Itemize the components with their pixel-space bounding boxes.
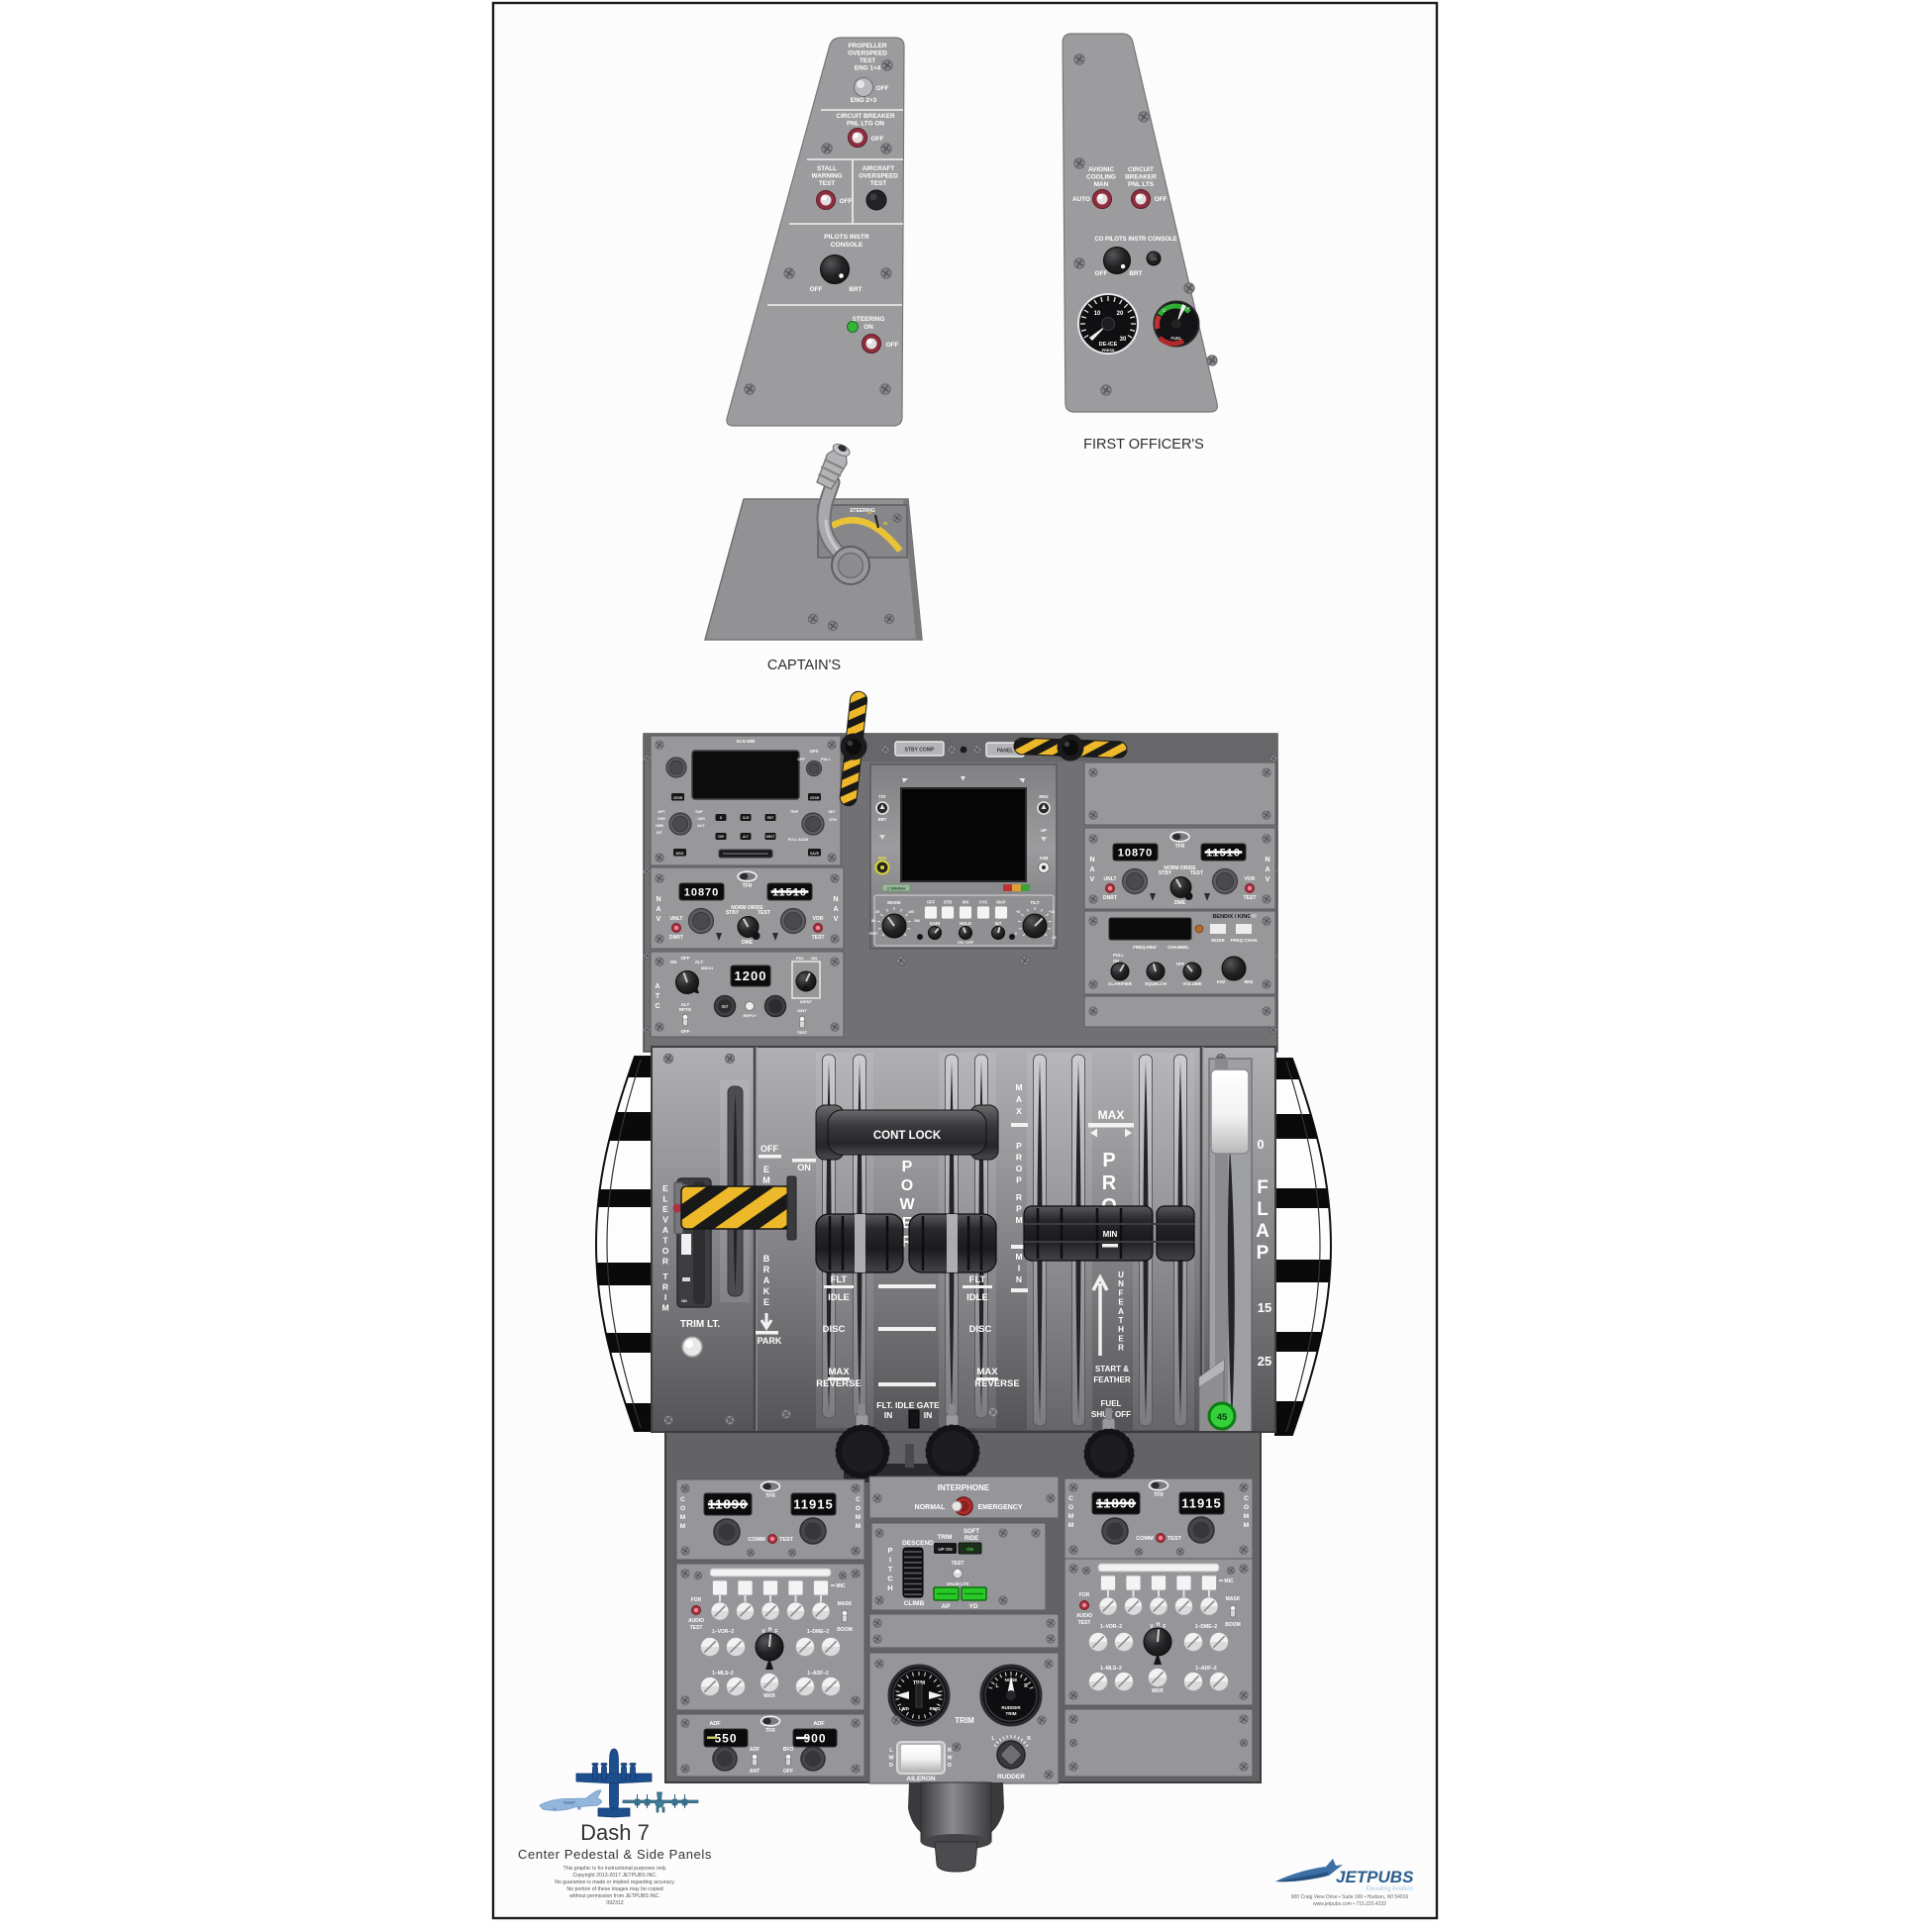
svg-text:PROPELLER: PROPELLER <box>848 43 886 50</box>
svg-text:ON: ON <box>811 956 817 961</box>
svg-text:1–DME–2: 1–DME–2 <box>1195 1624 1217 1630</box>
svg-text:D: D <box>889 1763 893 1769</box>
svg-text:JETPUBS: JETPUBS <box>1336 1868 1414 1886</box>
svg-text:H: H <box>1157 1622 1161 1628</box>
svg-text:DME: DME <box>742 940 754 946</box>
svg-text:11915: 11915 <box>1181 1496 1221 1511</box>
svg-text:CONT LOCK: CONT LOCK <box>873 1130 942 1142</box>
svg-text:MHZ: MHZ <box>1244 979 1254 984</box>
svg-text:A: A <box>662 1225 668 1235</box>
svg-text:M: M <box>680 1523 685 1530</box>
svg-text:www.jetpubs.com • 715.220.4232: www.jetpubs.com • 715.220.4232 <box>1313 1901 1386 1907</box>
svg-text:OFF: OFF <box>681 1029 690 1034</box>
svg-text:COOLING: COOLING <box>1086 174 1116 181</box>
svg-text:OFF: OFF <box>1095 270 1108 277</box>
svg-text:MSG: MSG <box>676 852 684 856</box>
svg-text:50: 50 <box>871 919 875 923</box>
svg-text:P: P <box>1016 1175 1022 1185</box>
svg-text:O: O <box>901 1177 913 1194</box>
svg-text:I: I <box>664 1292 666 1302</box>
svg-text:O: O <box>662 1246 669 1256</box>
svg-text:10: 10 <box>1094 311 1101 317</box>
svg-text:C: C <box>1068 1495 1073 1502</box>
svg-text:ADF: ADF <box>750 1747 760 1753</box>
svg-text:15: 15 <box>1258 1300 1271 1315</box>
svg-text:M: M <box>762 1175 770 1185</box>
svg-text:FREQ CHAN: FREQ CHAN <box>1231 938 1258 943</box>
svg-text:A: A <box>833 906 838 913</box>
svg-text:1–ADF–2: 1–ADF–2 <box>1195 1666 1217 1672</box>
svg-text:TFR: TFR <box>765 1728 775 1734</box>
svg-text:P: P <box>887 1546 892 1555</box>
svg-text:STBY: STBY <box>726 910 740 916</box>
svg-text:F: F <box>1119 1288 1124 1297</box>
svg-text:Center Pedestal & Side Panels: Center Pedestal & Side Panels <box>518 1847 712 1862</box>
svg-text:A: A <box>1016 1094 1022 1104</box>
svg-text:M: M <box>1068 1513 1073 1520</box>
svg-text:Dash 7: Dash 7 <box>580 1820 650 1845</box>
svg-text:SET: SET <box>829 810 837 814</box>
svg-text:C: C <box>887 1575 893 1583</box>
svg-text:MODE: MODE <box>1211 938 1225 943</box>
svg-text:MIC: MIC <box>1224 1578 1234 1584</box>
svg-text:W: W <box>899 1196 915 1213</box>
svg-text:P: P <box>1102 1150 1115 1171</box>
svg-text:PULL: PULL <box>821 758 832 762</box>
svg-text:20: 20 <box>1117 311 1124 317</box>
svg-text:MAX: MAX <box>1098 1108 1125 1122</box>
svg-text:STB: STB <box>944 900 952 905</box>
svg-text:E: E <box>662 1183 668 1193</box>
svg-text:PNL LTG ON: PNL LTG ON <box>847 121 884 128</box>
svg-text:C: C <box>1244 1495 1249 1502</box>
svg-text:MKR: MKR <box>763 1693 775 1699</box>
svg-text:BRT: BRT <box>849 286 862 293</box>
svg-text:H: H <box>1118 1325 1124 1334</box>
svg-text:E: E <box>763 1165 769 1174</box>
svg-text:MASK: MASK <box>1226 1596 1241 1602</box>
svg-text:R: R <box>1118 1344 1124 1353</box>
svg-text:RUDDER: RUDDER <box>997 1774 1025 1780</box>
svg-text:RUDDER: RUDDER <box>1001 1705 1021 1710</box>
svg-text:DE-ICE: DE-ICE <box>1099 342 1118 348</box>
svg-text:E: E <box>763 1297 769 1307</box>
svg-text:R: R <box>1102 1172 1117 1194</box>
svg-text:O: O <box>1244 1504 1249 1511</box>
svg-text:This graphic is for instructio: This graphic is for instructional purpos… <box>563 1866 667 1872</box>
svg-text:KLN 90B: KLN 90B <box>737 739 757 744</box>
svg-text:VOR: VOR <box>658 817 665 821</box>
svg-text:M: M <box>1015 1215 1022 1225</box>
svg-text:M: M <box>1244 1522 1249 1529</box>
svg-text:L: L <box>991 1736 994 1742</box>
svg-text:OFF: OFF <box>871 136 884 143</box>
svg-text:APT: APT <box>658 810 665 814</box>
svg-text:N: N <box>833 896 838 903</box>
svg-text:IDNT: IDNT <box>797 1008 807 1013</box>
svg-text:MIC: MIC <box>836 1583 846 1589</box>
svg-text:V: V <box>657 916 661 923</box>
svg-text:MAN: MAN <box>1094 181 1109 188</box>
svg-text:45: 45 <box>1217 1412 1228 1423</box>
svg-text:IDLE: IDLE <box>966 1292 988 1303</box>
svg-text:P: P <box>1016 1204 1022 1214</box>
svg-text:SQUELCH: SQUELCH <box>1145 981 1166 986</box>
svg-text:R: R <box>948 1748 952 1754</box>
svg-text:ON: ON <box>966 1547 973 1552</box>
svg-text:25: 25 <box>1258 1354 1271 1369</box>
svg-text:V: V <box>1090 876 1095 883</box>
svg-text:REVERSE: REVERSE <box>816 1378 861 1389</box>
svg-text:DME: DME <box>1174 900 1186 906</box>
svg-text:TEST: TEST <box>1078 1620 1091 1626</box>
svg-text:INT: INT <box>995 921 1002 926</box>
svg-text:ENG 1+4: ENG 1+4 <box>855 65 881 72</box>
svg-text:NRST: NRST <box>766 835 775 839</box>
svg-text:A: A <box>1256 1221 1269 1242</box>
svg-text:TEST: TEST <box>797 1030 808 1035</box>
svg-text:ON: ON <box>797 1163 811 1172</box>
svg-text:TEST: TEST <box>869 932 879 936</box>
svg-text:0: 0 <box>1015 932 1017 936</box>
svg-text:OFF: OFF <box>761 1144 778 1154</box>
svg-text:VOLUME: VOLUME <box>1182 981 1201 986</box>
svg-text:ON: ON <box>670 960 677 965</box>
svg-text:N: N <box>1089 857 1094 864</box>
svg-text:M: M <box>1015 1252 1022 1262</box>
svg-text:1–DME–2: 1–DME–2 <box>807 1629 829 1635</box>
svg-text:NAV: NAV <box>878 856 887 861</box>
svg-text:M: M <box>856 1514 861 1521</box>
svg-text:ON: ON <box>863 324 873 331</box>
svg-text:OFF: OFF <box>927 900 936 905</box>
svg-text:STALL: STALL <box>817 165 837 172</box>
svg-text:SAVE: SAVE <box>810 852 820 856</box>
svg-text:O: O <box>680 1505 685 1512</box>
svg-text:No portion of these images may: No portion of these images may be copied <box>566 1886 662 1892</box>
svg-text:BREAKER: BREAKER <box>1125 174 1157 181</box>
svg-text:PARK: PARK <box>758 1336 782 1346</box>
svg-text:N: N <box>1265 857 1269 864</box>
svg-text:X: X <box>1016 1106 1022 1116</box>
svg-text:REPLY: REPLY <box>744 1013 757 1018</box>
svg-text:TILT: TILT <box>1030 900 1039 905</box>
svg-text:TRIM: TRIM <box>955 1716 974 1725</box>
svg-text:F: F <box>1187 306 1190 311</box>
svg-text:TRIP: TRIP <box>790 810 799 814</box>
svg-text:OFF: OFF <box>1155 196 1167 203</box>
svg-text:V: V <box>834 916 839 923</box>
svg-text:LWD: LWD <box>899 1706 910 1711</box>
svg-text:MAX: MAX <box>828 1367 850 1377</box>
svg-text:BENDIX / KING: BENDIX / KING <box>1212 914 1251 920</box>
svg-text:OVERSPEED: OVERSPEED <box>859 173 898 180</box>
svg-text:30: 30 <box>1120 337 1127 343</box>
svg-text:-15: -15 <box>1051 936 1056 940</box>
svg-text:AP: AP <box>941 1603 951 1610</box>
svg-text:A: A <box>1089 866 1094 873</box>
svg-text:092312: 092312 <box>606 1900 623 1906</box>
svg-text:OFF: OFF <box>886 342 899 349</box>
svg-text:IN: IN <box>884 1410 893 1420</box>
svg-text:ASB: ASB <box>1040 856 1049 861</box>
svg-text:A: A <box>655 983 659 990</box>
svg-text:ALT: ALT <box>743 835 749 839</box>
svg-text:W: W <box>888 1756 894 1762</box>
svg-text:START &: START & <box>1095 1365 1129 1373</box>
svg-text:BRT: BRT <box>1129 270 1142 277</box>
svg-text:100: 100 <box>908 910 914 914</box>
svg-text:A: A <box>656 906 660 913</box>
svg-text:R: R <box>662 1282 668 1292</box>
svg-text:CRSR: CRSR <box>673 796 683 800</box>
svg-text:MAX: MAX <box>976 1367 998 1377</box>
svg-text:TEST: TEST <box>1190 870 1203 876</box>
svg-text:PRESS: PRESS <box>1102 349 1115 353</box>
svg-text:C SPKRVH: C SPKRVH <box>887 887 905 891</box>
svg-text:T: T <box>656 993 660 1000</box>
svg-text:A: A <box>1118 1307 1124 1316</box>
svg-text:TEST: TEST <box>758 910 770 916</box>
svg-text:TFR: TFR <box>765 1493 775 1499</box>
svg-text:F: F <box>1257 1177 1268 1198</box>
svg-text:U: U <box>1118 1271 1124 1279</box>
svg-text:A: A <box>763 1275 770 1285</box>
svg-text:MASK: MASK <box>838 1601 853 1607</box>
svg-text:CRSR: CRSR <box>810 796 820 800</box>
svg-text:OVERSPEED: OVERSPEED <box>848 51 887 57</box>
svg-text:PULL SCAN: PULL SCAN <box>788 838 809 842</box>
svg-text:FEATHER: FEATHER <box>1093 1375 1130 1384</box>
svg-text:+5: +5 <box>1016 910 1020 914</box>
svg-text:L: L <box>662 1194 667 1204</box>
svg-text:YD: YD <box>968 1603 977 1610</box>
svg-text:VOR: VOR <box>1245 876 1256 882</box>
svg-text:R: R <box>1027 1736 1031 1742</box>
svg-text:FUEL: FUEL <box>1101 1399 1122 1408</box>
svg-text:35: 35 <box>867 510 872 515</box>
svg-text:BRT: BRT <box>878 817 887 822</box>
svg-text:1200: 1200 <box>735 968 767 983</box>
svg-text:E: E <box>1118 1298 1124 1307</box>
svg-text:TST: TST <box>878 794 886 799</box>
svg-text:1–MLS–2: 1–MLS–2 <box>1100 1666 1122 1672</box>
svg-text:PULL: PULL <box>1113 953 1124 958</box>
svg-text:T: T <box>1119 1316 1124 1325</box>
svg-text:REVERSE: REVERSE <box>974 1378 1019 1389</box>
svg-text:OFF: OFF <box>797 758 805 762</box>
svg-text:R: R <box>763 1265 770 1274</box>
svg-text:25: 25 <box>875 910 879 914</box>
svg-text:M: M <box>1068 1522 1073 1529</box>
svg-text:NORMAL: NORMAL <box>915 1504 946 1511</box>
svg-text:STBY: STBY <box>1159 870 1172 876</box>
svg-text:FLT: FLT <box>831 1274 848 1285</box>
svg-text:E: E <box>662 1204 668 1214</box>
svg-text:MECH: MECH <box>701 966 713 970</box>
svg-text:FUEL: FUEL <box>1171 336 1182 341</box>
svg-text:1–VOR–2: 1–VOR–2 <box>712 1629 734 1635</box>
svg-text:M: M <box>661 1303 668 1313</box>
svg-text:GAIN: GAIN <box>930 921 940 926</box>
svg-text:OFF: OFF <box>810 286 823 293</box>
svg-text:A: A <box>1265 866 1269 873</box>
svg-text:IN: IN <box>924 1410 933 1420</box>
svg-text:OFF: OFF <box>840 198 853 205</box>
svg-text:C: C <box>680 1496 685 1503</box>
svg-text:CYC: CYC <box>979 900 988 905</box>
svg-text:TEST: TEST <box>812 935 825 941</box>
svg-text:INT: INT <box>722 1004 729 1009</box>
svg-text:BOOM: BOOM <box>837 1627 853 1633</box>
svg-text:V: V <box>1266 876 1270 883</box>
svg-text:SUP: SUP <box>695 810 703 814</box>
svg-text:COMM: COMM <box>1136 1536 1154 1542</box>
svg-text:0: 0 <box>1257 1137 1264 1152</box>
svg-text:IDENT: IDENT <box>800 999 813 1004</box>
svg-text:AUDIO: AUDIO <box>1076 1613 1092 1619</box>
svg-text:I: I <box>1018 1264 1020 1273</box>
svg-text:DISC: DISC <box>823 1324 846 1335</box>
svg-text:FREQ-MHZ: FREQ-MHZ <box>1133 945 1157 950</box>
svg-text:TEST: TEST <box>952 1561 964 1567</box>
svg-text:L: L <box>1257 1199 1268 1220</box>
svg-text:T: T <box>888 1565 893 1574</box>
svg-text:DNRT: DNRT <box>1103 895 1117 901</box>
svg-text:KHZ: KHZ <box>1217 979 1226 984</box>
svg-text:CAPTAIN'S: CAPTAIN'S <box>767 658 841 673</box>
svg-text:CONSOLE: CONSOLE <box>831 242 863 249</box>
svg-text:CHANNEL: CHANNEL <box>1167 945 1189 950</box>
svg-text:200: 200 <box>914 919 920 923</box>
svg-text:UNLT: UNLT <box>670 916 683 922</box>
svg-text:FOR: FOR <box>1079 1592 1090 1598</box>
svg-text:TFR: TFR <box>1175 844 1185 850</box>
svg-text:MKR: MKR <box>1152 1688 1164 1694</box>
svg-text:VOR: VOR <box>813 916 824 922</box>
svg-text:UNLT: UNLT <box>1104 876 1117 882</box>
svg-text:RIDE: RIDE <box>964 1536 978 1542</box>
svg-text:WX: WX <box>963 900 969 905</box>
svg-text:RWD: RWD <box>930 1706 941 1711</box>
svg-text:CLIMB: CLIMB <box>904 1600 925 1607</box>
svg-text:ACT: ACT <box>697 824 705 828</box>
svg-text:DESCEND: DESCEND <box>902 1540 934 1547</box>
svg-text:ENT: ENT <box>767 816 773 820</box>
svg-text:FLT: FLT <box>969 1274 986 1285</box>
svg-text:H: H <box>887 1583 892 1592</box>
svg-text:35: 35 <box>883 521 888 526</box>
svg-text:STBY COMP: STBY COMP <box>905 748 935 754</box>
svg-text:OFF: OFF <box>681 956 690 961</box>
svg-text:O: O <box>1068 1504 1073 1511</box>
svg-text:PILOTS INSTR: PILOTS INSTR <box>824 234 869 241</box>
svg-text:INTERPHONE: INTERPHONE <box>938 1483 990 1492</box>
svg-text:ANT: ANT <box>750 1769 760 1775</box>
svg-text:PUL: PUL <box>796 956 805 961</box>
svg-text:without permission from JETPUB: without permission from JETPUBS INC. <box>569 1893 659 1899</box>
svg-text:IDLE: IDLE <box>828 1292 850 1303</box>
svg-text:Elevating Aviation: Elevating Aviation <box>1367 1886 1413 1892</box>
svg-text:7.5: 7.5 <box>1151 256 1157 261</box>
svg-text:SOFT: SOFT <box>963 1529 979 1535</box>
svg-text:OTH: OTH <box>829 818 837 822</box>
svg-text:PNL LTS: PNL LTS <box>1128 181 1155 188</box>
svg-text:H: H <box>768 1627 772 1633</box>
svg-text:I: I <box>889 1556 891 1565</box>
svg-text:E: E <box>1118 1334 1124 1343</box>
svg-text:OFF: OFF <box>1176 962 1185 966</box>
svg-text:CO PILOTS INSTR CONSOLE: CO PILOTS INSTR CONSOLE <box>1094 237 1176 243</box>
svg-text:C: C <box>655 1003 659 1010</box>
svg-text:P: P <box>1016 1141 1022 1151</box>
svg-text:1–ADF–2: 1–ADF–2 <box>807 1671 829 1677</box>
svg-text:COMM: COMM <box>748 1537 765 1543</box>
svg-text:M: M <box>1244 1513 1249 1520</box>
svg-text:FLT. IDLE GATE: FLT. IDLE GATE <box>876 1400 940 1410</box>
svg-text:N: N <box>1016 1274 1022 1284</box>
svg-text:WARNING: WARNING <box>812 173 843 180</box>
svg-text:TEST: TEST <box>819 180 835 187</box>
svg-text:ALT: ALT <box>695 960 704 965</box>
svg-text:STEERING: STEERING <box>853 316 885 323</box>
svg-text:MODE: MODE <box>887 900 901 905</box>
svg-text:HOLD: HOLD <box>960 921 971 926</box>
svg-text:DIR: DIR <box>718 835 724 839</box>
svg-text:OFF: OFF <box>783 1769 793 1775</box>
svg-text:10870: 10870 <box>684 886 720 898</box>
svg-text:FIRST OFFICER'S: FIRST OFFICER'S <box>1083 437 1204 453</box>
svg-text:TEST: TEST <box>779 1537 794 1543</box>
svg-text:TEST: TEST <box>860 57 875 64</box>
svg-text:P: P <box>1257 1243 1269 1264</box>
svg-text:AUDIO: AUDIO <box>688 1618 704 1624</box>
svg-text:D: D <box>948 1763 952 1769</box>
svg-text:EMERGENCY: EMERGENCY <box>977 1504 1022 1511</box>
svg-text:HF: HF <box>1250 914 1258 920</box>
svg-text:UP: UP <box>1041 828 1047 833</box>
svg-text:R: R <box>1024 1683 1028 1689</box>
svg-text:No guarantee is made or implie: No guarantee is made or implied regardin… <box>555 1880 675 1885</box>
svg-text:P: P <box>902 1159 913 1175</box>
svg-text:M: M <box>680 1514 685 1521</box>
svg-text:M: M <box>1015 1082 1022 1092</box>
svg-text:ADF: ADF <box>813 1721 825 1727</box>
svg-text:TRIM: TRIM <box>1006 1711 1017 1716</box>
svg-text:W: W <box>947 1756 953 1762</box>
svg-text:ON / OFF: ON / OFF <box>958 941 974 945</box>
svg-text:GPS: GPS <box>810 749 819 754</box>
svg-text:TRIM: TRIM <box>938 1535 953 1541</box>
svg-text:CIRCUIT BREAKER: CIRCUIT BREAKER <box>836 113 895 120</box>
svg-text:O: O <box>856 1505 861 1512</box>
svg-text:550: 550 <box>714 1731 737 1745</box>
svg-text:900 Craig View Drive • Suite 1: 900 Craig View Drive • Suite 160 • Hudso… <box>1291 1894 1409 1900</box>
svg-text:O: O <box>1016 1164 1023 1173</box>
svg-text:K: K <box>763 1286 770 1296</box>
svg-text:10870: 10870 <box>1118 847 1154 859</box>
svg-text:TEST: TEST <box>870 180 886 187</box>
svg-text:AUTO: AUTO <box>1072 196 1090 203</box>
svg-text:TEST: TEST <box>1167 1536 1182 1542</box>
svg-text:R: R <box>1016 1192 1022 1202</box>
svg-text:TEST: TEST <box>690 1625 703 1631</box>
svg-text:11915: 11915 <box>793 1497 833 1512</box>
svg-text:MAP: MAP <box>996 900 1006 905</box>
svg-text:AILERON: AILERON <box>906 1776 936 1782</box>
svg-text:AVIONIC: AVIONIC <box>1088 166 1115 173</box>
svg-text:1–VOR–2: 1–VOR–2 <box>1100 1624 1122 1630</box>
